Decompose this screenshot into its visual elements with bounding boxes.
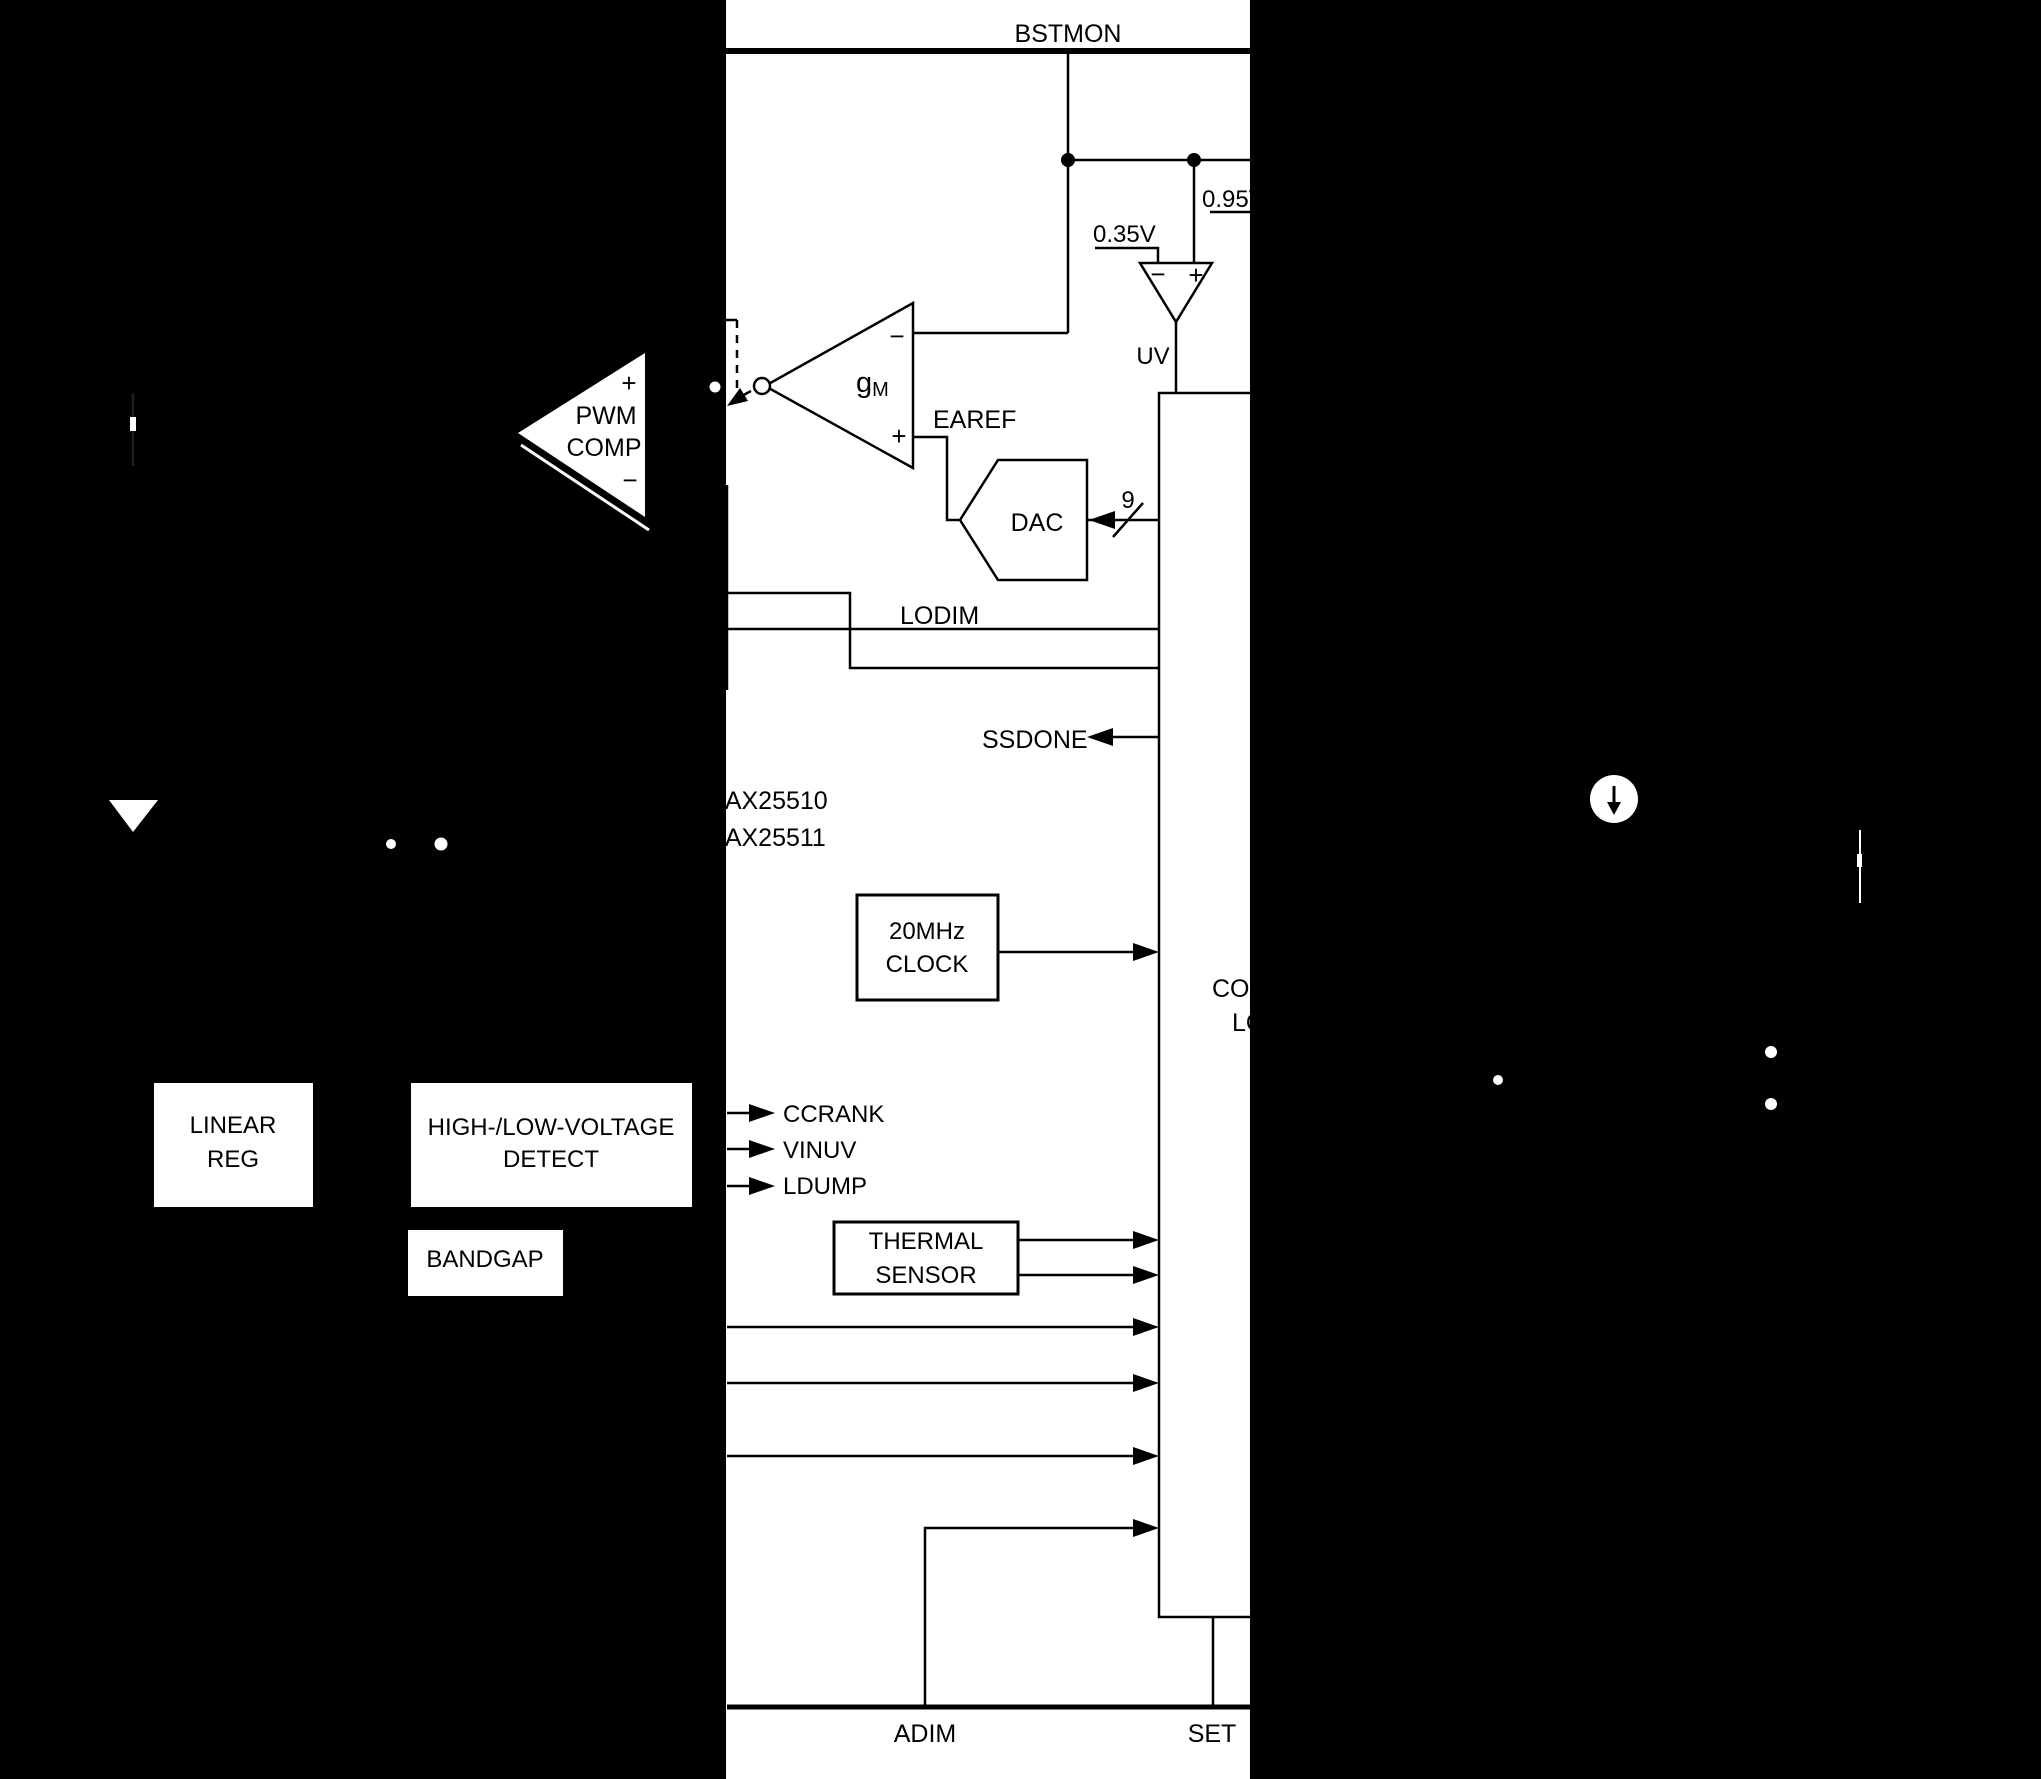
set-pin-label: SET (1188, 1720, 1237, 1748)
white-wire-tick (1857, 854, 1862, 867)
bandgap-block: BANDGAP (408, 1230, 563, 1296)
gm-plus: + (891, 421, 906, 451)
bstmon-label: BSTMON (1015, 20, 1122, 48)
comp-junction-dot (710, 382, 721, 393)
pwm-comp-plus: + (621, 368, 636, 398)
gm-g: g (856, 367, 872, 399)
visible-diagram-strip (726, 0, 1250, 1779)
v035-label: 0.35V (1093, 221, 1156, 248)
hv-detect-block: HIGH-/LOW-VOLTAGE DETECT (411, 1083, 692, 1207)
current-source-icon (1590, 775, 1638, 823)
junction-dot-white (1765, 1046, 1777, 1058)
gm-sub: M (872, 379, 889, 401)
thermal-label-1: THERMAL (869, 1228, 984, 1255)
thermal-label-2: SENSOR (875, 1262, 976, 1289)
ssdone-label: SSDONE (982, 726, 1088, 754)
gm-minus: − (889, 321, 904, 351)
linear-reg-label-1: LINEAR (190, 1112, 277, 1139)
lodim-label: LODIM (900, 602, 979, 630)
junction-dot (1187, 153, 1201, 167)
uv-comp-minus: − (1150, 259, 1165, 289)
pwm-comp-label-2: COMP (567, 434, 642, 462)
hv-detect-label-1: HIGH-/LOW-VOLTAGE (428, 1114, 675, 1141)
dac-label: DAC (1011, 509, 1064, 537)
pwm-comp-label-1: PWM (575, 402, 636, 430)
gm-output-node-circle (754, 378, 770, 394)
linear-reg-block: LINEAR REG (154, 1083, 313, 1207)
bus-width-label: 9 (1121, 487, 1134, 514)
junction-dot-white (386, 839, 396, 849)
junction-dot-white (1765, 1098, 1777, 1110)
functional-diagram: BSTMON 0.95V 0.35V − + UV − + gM EAREF D… (0, 0, 2041, 1779)
linear-reg-box (154, 1083, 313, 1207)
bandgap-label: BANDGAP (426, 1246, 543, 1273)
linear-reg-label-2: REG (207, 1146, 259, 1173)
junction-dot-white (1493, 1075, 1503, 1085)
hv-detect-label-2: DETECT (503, 1146, 599, 1173)
junction-dot (1061, 153, 1075, 167)
uv-comp-plus: + (1188, 260, 1203, 290)
pwm-comp-minus: − (622, 465, 637, 495)
uv-label: UV (1136, 343, 1169, 370)
clock-label-2: CLOCK (886, 951, 969, 978)
clock-label-1: 20MHz (889, 918, 965, 945)
vinuv-label: VINUV (783, 1137, 856, 1164)
ccrank-label: CCRANK (783, 1101, 884, 1128)
junction-dot-white (435, 838, 448, 851)
earef-label: EAREF (933, 406, 1016, 434)
ldump-label: LDUMP (783, 1173, 867, 1200)
diagram-svg: BSTMON 0.95V 0.35V − + UV − + gM EAREF D… (0, 0, 2041, 1779)
capacitor-tick (130, 417, 136, 431)
adim-pin-label: ADIM (894, 1720, 957, 1748)
hv-detect-box (411, 1083, 692, 1207)
